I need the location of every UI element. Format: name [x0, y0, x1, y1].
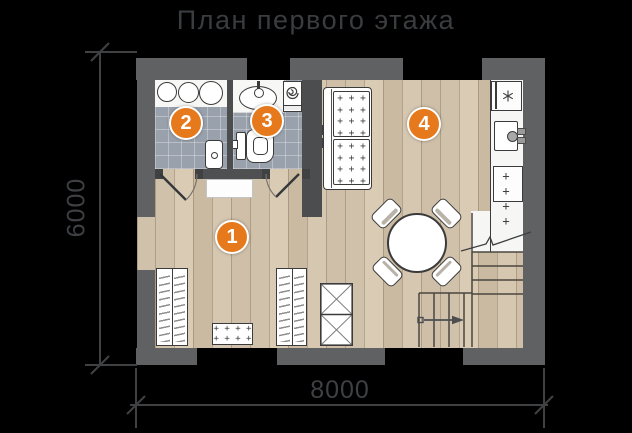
wardrobe-divider [172, 269, 173, 345]
exterior-wall-right [523, 58, 545, 365]
exterior-wall-top [290, 58, 403, 80]
snowflake-icon [502, 90, 514, 102]
fridge-door-line [495, 82, 497, 109]
dimension-width-label: 8000 [280, 376, 400, 405]
washer-panel [284, 105, 301, 110]
wardrobe-divider [292, 269, 293, 345]
room-badge-3: 3 [250, 104, 284, 138]
wall-toilet-living [302, 80, 322, 217]
door-jamb [195, 169, 203, 179]
kitchen-counter-return [471, 211, 490, 252]
wardrobe-right [276, 268, 307, 346]
round-basin-icon [157, 82, 177, 102]
faucet-icon [517, 128, 526, 135]
sofa-cushion: + + + + + + + + + + + + [333, 91, 370, 137]
exterior-wall-left [137, 270, 155, 348]
dimension-height-label: 6000 [63, 158, 92, 258]
sofa-cushion: + + + + + + + + + + + + [333, 139, 370, 185]
floor-plan: План первого этажа + + + + [0, 0, 632, 433]
toilet-bowl-icon [253, 137, 268, 155]
wood-floor-opening [137, 217, 155, 270]
wardrobe-hatch [294, 272, 305, 342]
page-title: План первого этажа [0, 5, 632, 36]
door-jamb [302, 169, 310, 179]
dining-table [387, 213, 447, 273]
wardrobe-hatch [159, 272, 170, 342]
wall-hallway [203, 169, 262, 179]
wall-bathroom-toilet [227, 80, 233, 169]
room-badge-2: 2 [169, 106, 203, 140]
room-badge-4: 4 [407, 107, 441, 141]
exterior-wall-bottom [277, 348, 385, 365]
exterior-wall-bottom [136, 348, 197, 365]
door-jamb [262, 169, 270, 179]
round-basin-icon [178, 82, 199, 103]
exterior-wall-left [137, 58, 155, 217]
wardrobe-hatch [279, 272, 290, 342]
entrance-mat: + + + + + + + + [212, 323, 253, 345]
spiral-drum-icon [284, 83, 301, 103]
door-jamb [155, 169, 163, 179]
console-shelf [206, 179, 253, 198]
room-badge-1: 1 [215, 220, 249, 254]
round-basin-icon [199, 81, 223, 105]
drain-icon [254, 88, 264, 98]
stove: + + + + [493, 166, 523, 202]
crossed-boxes-cabinet [320, 283, 353, 346]
wardrobe-left [156, 268, 188, 346]
wardrobe-hatch [174, 272, 185, 342]
faucet-icon [517, 137, 526, 144]
appliance-handle-icon [211, 152, 218, 159]
